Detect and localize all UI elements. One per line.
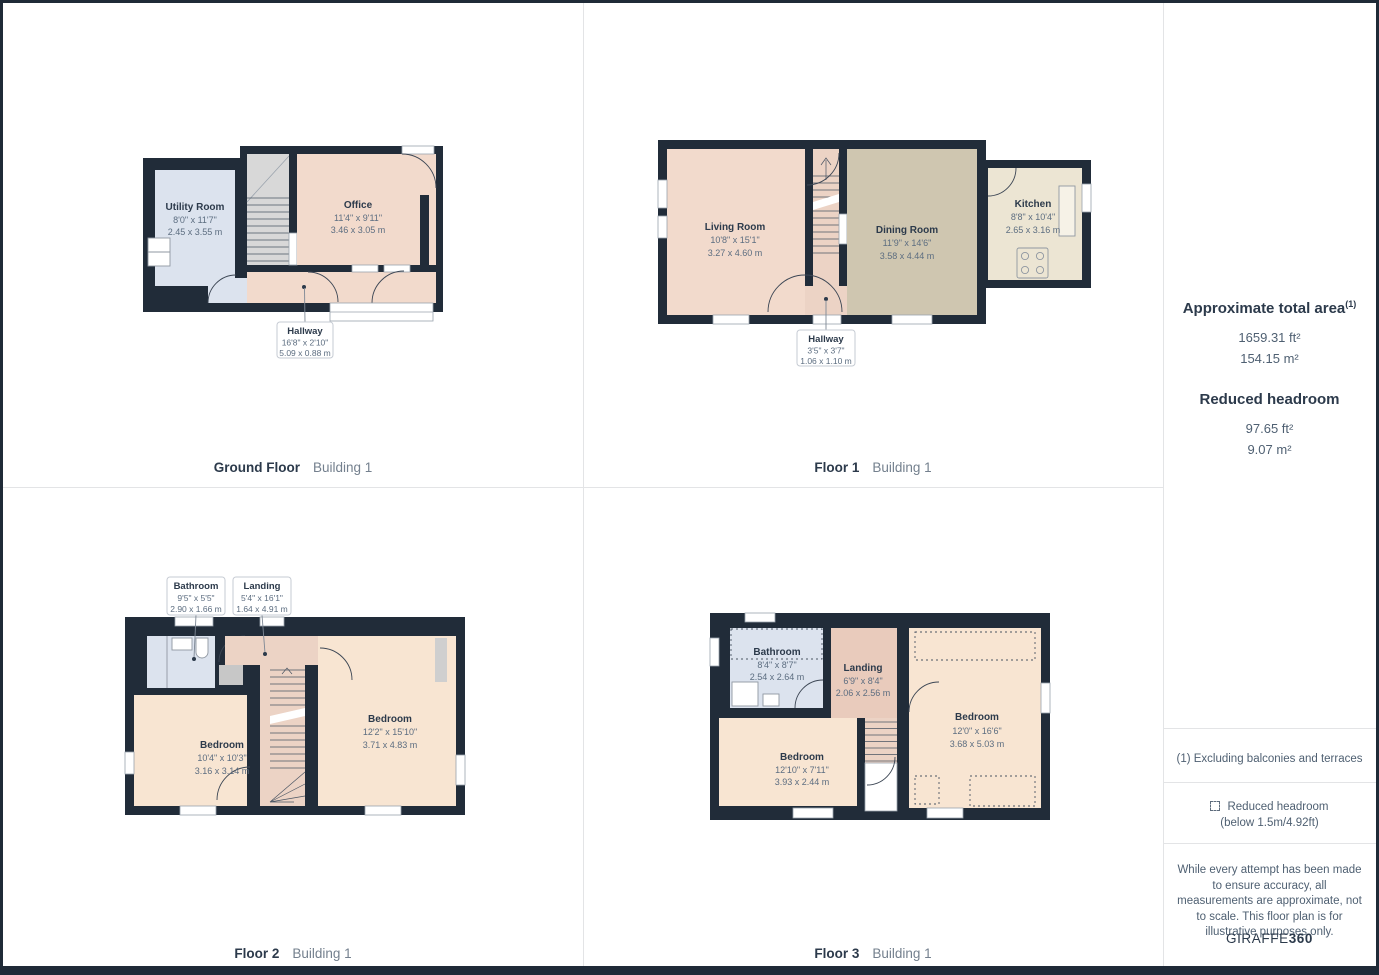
stairs-ground (247, 154, 289, 265)
svg-text:12'2" x 15'10": 12'2" x 15'10" (363, 727, 417, 737)
sidebar-section-divider (1163, 843, 1376, 844)
giraffe360-logo: GIRAFFE360 (1163, 931, 1376, 946)
svg-text:Kitchen: Kitchen (1015, 199, 1052, 210)
room-bathroom-floor3: Bathroom 8'4" x 8'7" 2.54 x 2.64 m (730, 628, 823, 708)
total-area-block: Approximate total area(1) 1659.31 ft² 15… (1163, 299, 1376, 369)
quadrant-divider-horizontal (3, 487, 1163, 488)
total-area-imperial: 1659.31 ft² (1163, 327, 1376, 348)
svg-text:Bedroom: Bedroom (955, 712, 999, 723)
building-name: Building 1 (872, 946, 931, 961)
svg-text:11'4" x 9'11": 11'4" x 9'11" (334, 213, 382, 223)
room-utility: Utility Room 8'0" x 11'7" 2.45 x 3.55 m (148, 170, 247, 303)
floor-2-plan: Bedroom 10'4" x 10'3" 3.16 x 3.14 m Bedr… (120, 570, 480, 832)
floor-name: Floor 2 (234, 946, 279, 961)
room-bedroom1-floor2: Bedroom 10'4" x 10'3" 3.16 x 3.14 m (134, 695, 250, 806)
floor-name: Floor 1 (814, 460, 859, 475)
svg-text:Office: Office (344, 200, 373, 211)
svg-text:12'0" x 16'6": 12'0" x 16'6" (952, 726, 1001, 736)
svg-text:1.06 x 1.10 m: 1.06 x 1.10 m (800, 356, 852, 366)
svg-text:6'9" x 8'4": 6'9" x 8'4" (843, 676, 882, 686)
svg-text:3.46 x 3.05 m: 3.46 x 3.05 m (331, 225, 386, 235)
area-footnote: (1) Excluding balconies and terraces (1163, 753, 1376, 765)
floor-name: Floor 3 (814, 946, 859, 961)
svg-text:Bedroom: Bedroom (780, 752, 824, 763)
reduced-headroom-metric: 9.07 m² (1163, 439, 1376, 460)
svg-text:3.58 x 4.44 m: 3.58 x 4.44 m (880, 251, 935, 261)
caption-ground-floor: Ground Floor Building 1 (3, 460, 583, 475)
reduced-headroom-legend: Reduced headroom (below 1.5m/4.92ft) (1163, 799, 1376, 831)
reduced-headroom-heading: Reduced headroom (1163, 391, 1376, 408)
room-dining: Dining Room 11'9" x 14'6" 3.58 x 4.44 m (847, 149, 977, 315)
svg-text:Bathroom: Bathroom (753, 647, 800, 658)
svg-text:3'5" x 3'7": 3'5" x 3'7" (807, 346, 844, 356)
total-area-heading: Approximate total area(1) (1163, 299, 1376, 317)
room-living: Living Room 10'8" x 15'1" 3.27 x 4.60 m (667, 149, 805, 315)
svg-text:1.64 x 4.91 m: 1.64 x 4.91 m (236, 604, 288, 614)
floor-name: Ground Floor (214, 460, 300, 475)
svg-text:2.90 x 1.66 m: 2.90 x 1.66 m (170, 604, 222, 614)
svg-text:9'5" x 5'5": 9'5" x 5'5" (177, 593, 214, 603)
room-bedroom2-floor2: Bedroom 12'2" x 15'10" 3.71 x 4.83 m (318, 636, 456, 806)
floor-3-plan: Bathroom 8'4" x 8'7" 2.54 x 2.64 m Landi… (705, 608, 1065, 826)
svg-text:2.06 x 2.56 m: 2.06 x 2.56 m (836, 688, 891, 698)
reduced-headroom-icon (1210, 801, 1220, 811)
reduced-headroom-block: Reduced headroom 97.65 ft² 9.07 m² (1163, 391, 1376, 460)
svg-text:5.09 x 0.88 m: 5.09 x 0.88 m (279, 348, 331, 358)
svg-text:5'4" x 16'1": 5'4" x 16'1" (241, 593, 283, 603)
room-office: Office 11'4" x 9'11" 3.46 x 3.05 m (297, 154, 436, 272)
svg-text:3.68 x 5.03 m: 3.68 x 5.03 m (950, 739, 1005, 749)
sidebar-section-divider (1163, 728, 1376, 729)
floorplan-sheet: Utility Room 8'0" x 11'7" 2.45 x 3.55 m … (0, 0, 1379, 975)
caption-floor-3: Floor 3 Building 1 (583, 946, 1163, 961)
caption-floor-1: Floor 1 Building 1 (583, 460, 1163, 475)
logo-text-bold: 360 (1289, 931, 1313, 946)
sidebar-section-divider (1163, 782, 1376, 783)
disclaimer-text: While every attempt has been made to ens… (1163, 863, 1376, 941)
caption-floor-2: Floor 2 Building 1 (3, 946, 583, 961)
svg-text:Bedroom: Bedroom (200, 740, 244, 751)
room-bedroom1-floor3: Bedroom 12'10" x 7'11" 3.93 x 2.44 m (719, 718, 857, 806)
ground-floor-plan: Utility Room 8'0" x 11'7" 2.45 x 3.55 m … (140, 138, 460, 370)
total-area-metric: 154.15 m² (1163, 348, 1376, 369)
svg-text:3.93 x 2.44 m: 3.93 x 2.44 m (775, 777, 830, 787)
building-name: Building 1 (292, 946, 351, 961)
stairs-floor3 (865, 718, 897, 811)
reduced-headroom-imperial: 97.65 ft² (1163, 418, 1376, 439)
svg-text:2.54 x 2.64 m: 2.54 x 2.64 m (750, 672, 805, 682)
svg-text:Utility Room: Utility Room (166, 202, 225, 213)
svg-text:2.45 x 3.55 m: 2.45 x 3.55 m (168, 227, 223, 237)
logo-text-regular: GIRAFFE (1226, 931, 1289, 946)
room-kitchen: Kitchen 8'8" x 10'4" 2.65 x 3.16 m (988, 168, 1082, 280)
quadrant-divider-vertical (583, 3, 584, 966)
svg-text:3.27 x 4.60 m: 3.27 x 4.60 m (708, 248, 763, 258)
svg-text:8'4" x 8'7": 8'4" x 8'7" (757, 660, 796, 670)
svg-text:10'8" x 15'1": 10'8" x 15'1" (710, 235, 759, 245)
building-name: Building 1 (872, 460, 931, 475)
svg-text:10'4" x 10'3": 10'4" x 10'3" (197, 753, 246, 763)
svg-text:Landing: Landing (844, 663, 883, 674)
svg-text:Living Room: Living Room (705, 222, 766, 233)
svg-text:Hallway: Hallway (287, 326, 323, 337)
room-landing-floor3: Landing 6'9" x 8'4" 2.06 x 2.56 m (831, 628, 897, 718)
svg-text:16'8" x 2'10": 16'8" x 2'10" (282, 338, 329, 348)
svg-text:8'8" x 10'4": 8'8" x 10'4" (1011, 212, 1055, 222)
legend-line2: (below 1.5m/4.92ft) (1163, 815, 1376, 831)
svg-text:Landing: Landing (244, 581, 281, 592)
svg-text:3.71 x 4.83 m: 3.71 x 4.83 m (363, 740, 418, 750)
svg-text:Hallway: Hallway (808, 334, 844, 345)
svg-text:12'10" x 7'11": 12'10" x 7'11" (775, 765, 829, 775)
room-bedroom2-floor3: Bedroom 12'0" x 16'6" 3.68 x 5.03 m (909, 628, 1041, 808)
svg-text:8'0" x 11'7": 8'0" x 11'7" (173, 215, 217, 225)
footnote-marker: (1) (1345, 299, 1356, 309)
building-name: Building 1 (313, 460, 372, 475)
legend-line1: Reduced headroom (1227, 801, 1328, 813)
floor-1-plan: Living Room 10'8" x 15'1" 3.27 x 4.60 m … (655, 136, 1095, 372)
svg-text:Dining Room: Dining Room (876, 225, 938, 236)
svg-text:Bathroom: Bathroom (174, 581, 219, 592)
svg-text:3.16 x 3.14 m: 3.16 x 3.14 m (195, 766, 250, 776)
svg-text:Bedroom: Bedroom (368, 714, 412, 725)
svg-text:2.65 x 3.16 m: 2.65 x 3.16 m (1006, 225, 1061, 235)
svg-text:11'9" x 14'6": 11'9" x 14'6" (883, 238, 932, 248)
